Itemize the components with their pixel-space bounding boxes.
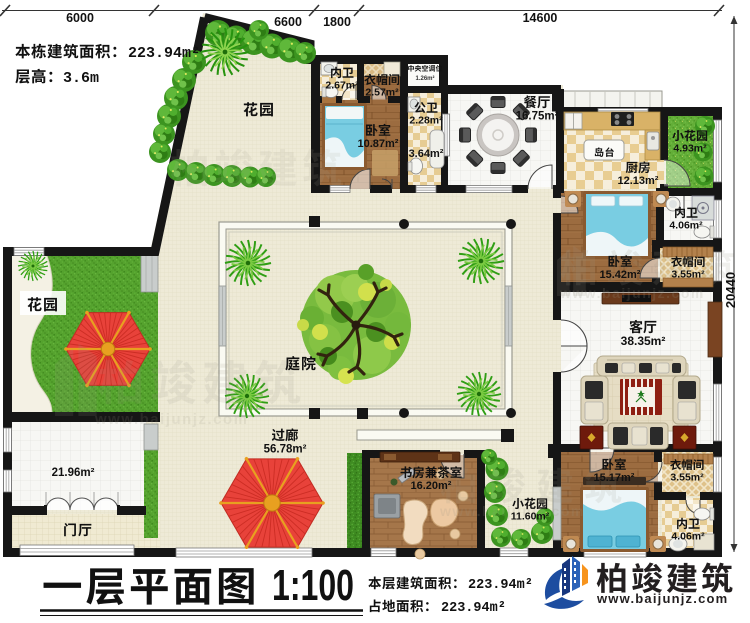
svg-text:1800: 1800 [323,15,351,29]
svg-text:6600: 6600 [274,15,302,29]
svg-text:1:100: 1:100 [272,561,354,610]
svg-text:4.06m²: 4.06m² [669,220,703,232]
svg-text:www.baijunjz.com: www.baijunjz.com [559,285,705,301]
svg-text:15.17m²: 15.17m² [594,472,635,484]
svg-text:21.96m²: 21.96m² [52,467,95,479]
svg-text:20440: 20440 [723,272,738,308]
svg-text:3.64m²: 3.64m² [409,148,444,160]
svg-text:16.75m²: 16.75m² [516,111,559,123]
svg-text:1.26m²: 1.26m² [415,75,434,82]
svg-text:12.13m²: 12.13m² [618,175,659,187]
svg-text:11.60m²: 11.60m² [511,511,550,523]
svg-text:38.35m²: 38.35m² [621,334,666,348]
svg-text:4.93m²: 4.93m² [673,143,707,155]
svg-text:223.94m²: 223.94m² [441,601,506,616]
svg-text:15.42m²: 15.42m² [600,269,641,281]
svg-text:2.57m²: 2.57m² [365,87,399,99]
svg-text:223.94m²: 223.94m² [128,45,200,62]
svg-text:10.87m²: 10.87m² [358,138,399,150]
svg-text:4.06m²: 4.06m² [671,531,705,543]
svg-text:56.78m²: 56.78m² [264,444,307,456]
svg-text:6000: 6000 [66,11,94,25]
svg-text:3.55m²: 3.55m² [671,269,705,281]
svg-text:2.28m²: 2.28m² [409,115,443,127]
svg-text:3.55m²: 3.55m² [670,472,704,484]
svg-text:16.20m²: 16.20m² [411,480,452,492]
svg-text:223.94m²: 223.94m² [468,578,533,593]
svg-text:14600: 14600 [523,11,558,25]
svg-text:www.baijunjz.com: www.baijunjz.com [596,591,728,606]
svg-text:3.6m: 3.6m [63,70,99,87]
svg-text:www.baijunjz.com: www.baijunjz.com [94,411,248,428]
svg-text:2.67m²: 2.67m² [325,80,359,92]
